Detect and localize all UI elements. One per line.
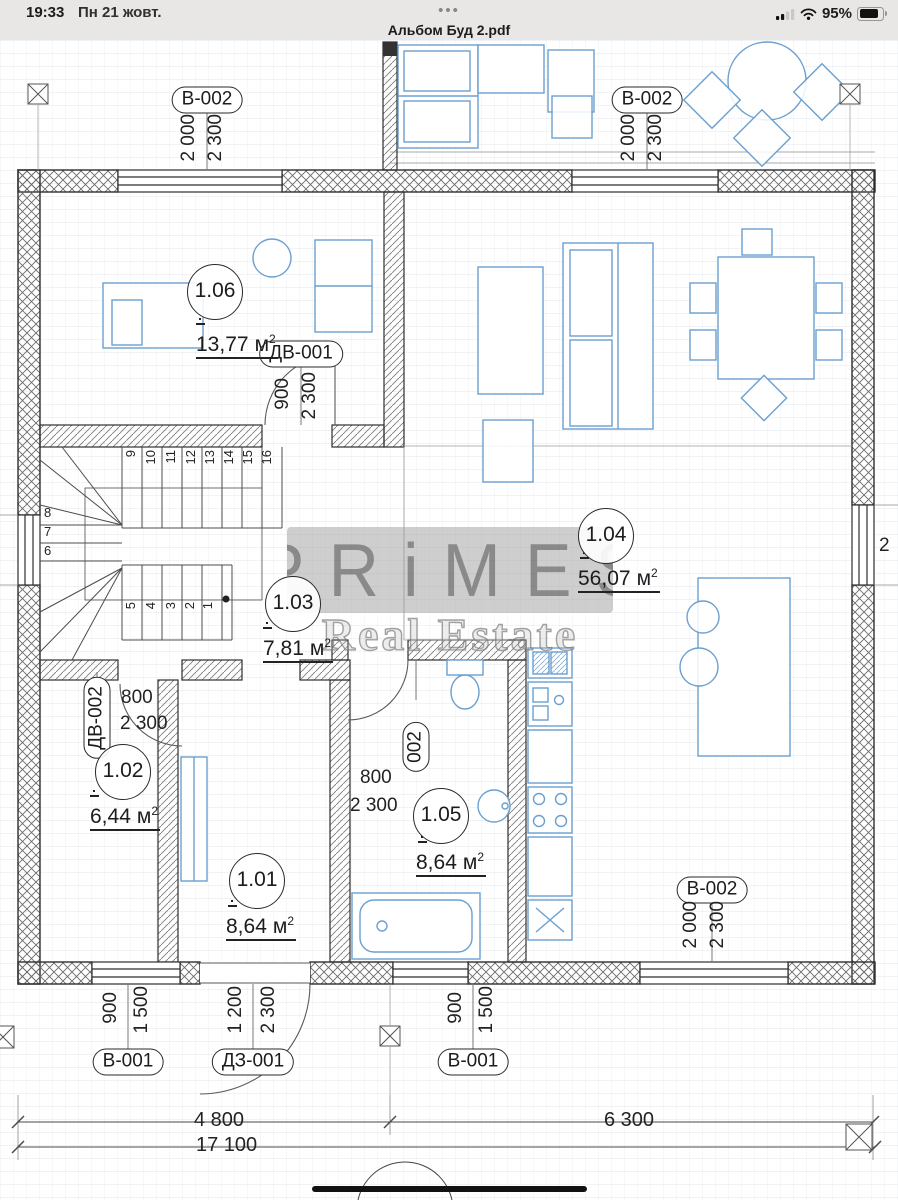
watermark-band: PRiMES: [287, 527, 613, 613]
dim-door105-2: 2 300: [350, 796, 398, 815]
tag-door-room105: 002: [403, 722, 430, 772]
stair-step-2: 2: [183, 602, 196, 609]
status-date: Пн 21 жовт.: [78, 4, 162, 21]
room-area-106: 13,77м2: [196, 328, 278, 359]
status-time: 19:33: [26, 4, 64, 21]
room-circle-102: 1.02: [95, 744, 151, 800]
level-mark: [196, 318, 205, 325]
tag-door-room102: ДВ-002: [84, 677, 111, 759]
tag-window-top-right: В-002: [612, 87, 683, 114]
stair-step-3: 3: [164, 602, 177, 609]
dim-door102-2: 2 300: [120, 714, 168, 733]
dim-top-left-2: 2 300: [206, 114, 225, 162]
cellular-signal-icon: [776, 8, 795, 20]
battery-icon: [857, 7, 884, 21]
dim-window-bl-2: 1 500: [132, 986, 151, 1034]
room-area-105: 8,64м2: [416, 846, 486, 877]
room-area-101: 8,64м2: [226, 910, 296, 941]
stair-step-15: 15: [241, 450, 254, 464]
dim-door106-1: 900: [273, 378, 292, 410]
level-mark: [228, 900, 237, 907]
dim-top-right-1: 2 000: [619, 114, 638, 162]
stair-step-1: 1: [201, 602, 214, 609]
dim-overall: 17 100: [196, 1135, 257, 1155]
home-indicator[interactable]: [312, 1186, 587, 1192]
dim-door105-1: 800: [360, 768, 392, 787]
tag-entrance-door: ДЗ-001: [212, 1049, 294, 1076]
document-title: Альбом Буд 2.pdf: [388, 22, 510, 38]
stair-step-14: 14: [222, 450, 235, 464]
dim-window-bm-2: 1 500: [477, 986, 496, 1034]
watermark-brand: PRiMES: [287, 527, 613, 613]
dim-bottom-right-1: 2 000: [681, 901, 700, 949]
room-circle-104: 1.04: [578, 508, 634, 564]
dim-span-left: 4 800: [194, 1110, 244, 1130]
dim-door106-2: 2 300: [300, 372, 319, 420]
tag-window-bottom-right: В-002: [677, 877, 748, 904]
stair-step-11: 11: [164, 450, 177, 464]
room-circle-103: 1.03: [265, 576, 321, 632]
dim-window-bl-1: 900: [101, 992, 120, 1024]
dim-entrance-1: 1 200: [226, 986, 245, 1034]
dim-top-left-1: 2 000: [179, 114, 198, 162]
dim-right-edge-partial: 2: [879, 536, 890, 555]
stair-step-10: 10: [144, 450, 157, 464]
terrace-wall-stub: [383, 42, 397, 170]
level-mark: [263, 622, 272, 629]
dim-window-bm-1: 900: [446, 992, 465, 1024]
watermark-subtitle: Real Estate: [295, 608, 605, 661]
stair-step-8: 8: [44, 506, 51, 519]
stair-step-4: 4: [144, 602, 157, 609]
dim-door102-1: 800: [121, 688, 153, 707]
room-circle-101: 1.01: [229, 853, 285, 909]
pdf-viewer-screen: 19:33 Пн 21 жовт. 95% ••• Альбом Буд 2.p…: [0, 0, 898, 1200]
dim-top-right-2: 2 300: [646, 114, 665, 162]
stair-step-5: 5: [124, 602, 137, 609]
stair-step-7: 7: [44, 525, 51, 538]
tag-window-bottom-left: В-001: [93, 1049, 164, 1076]
status-right-icons: 95%: [776, 5, 884, 22]
stair-step-6: 6: [44, 544, 51, 557]
battery-percent: 95%: [822, 5, 852, 22]
tag-window-top-left: В-002: [172, 87, 243, 114]
room-area-103: 7,81м2: [263, 632, 333, 663]
staircase: [40, 447, 282, 660]
menu-dots-button[interactable]: •••: [438, 2, 460, 19]
wifi-icon: [800, 8, 817, 20]
stair-step-9: 9: [124, 450, 137, 457]
stair-step-13: 13: [203, 450, 216, 464]
stair-step-16: 16: [260, 450, 273, 464]
tag-window-bottom-mid: В-001: [438, 1049, 509, 1076]
room-area-102: 6,44м2: [90, 800, 160, 831]
room-circle-105: 1.05: [413, 788, 469, 844]
dim-entrance-2: 2 300: [259, 986, 278, 1034]
dim-span-right: 6 300: [604, 1110, 654, 1130]
stair-step-12: 12: [184, 450, 197, 464]
header-bar: 19:33 Пн 21 жовт. 95% ••• Альбом Буд 2.p…: [0, 0, 898, 40]
level-mark: [90, 790, 99, 797]
room-area-104: 56,07м2: [578, 562, 660, 593]
dim-bottom-right-2: 2 300: [708, 901, 727, 949]
room-circle-106: 1.06: [187, 264, 243, 320]
